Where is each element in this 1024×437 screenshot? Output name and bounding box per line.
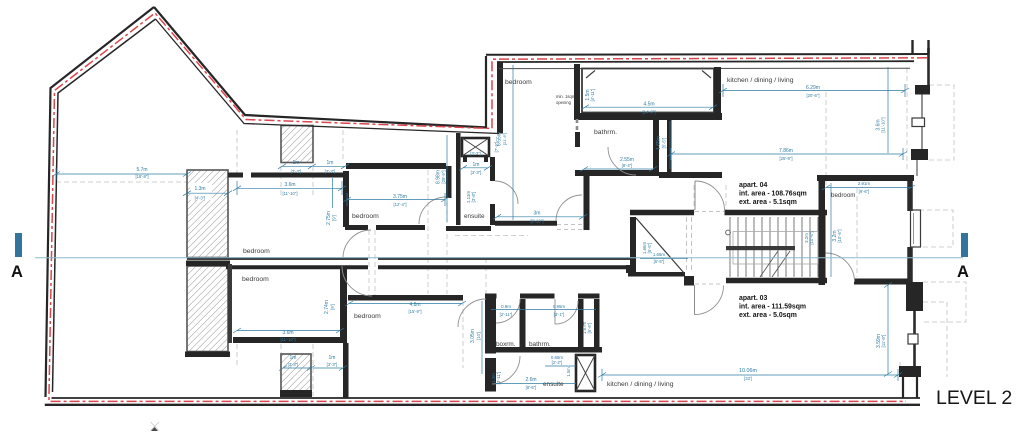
svg-text:10.06m: 10.06m (739, 368, 757, 374)
svg-text:[25'-9"]: [25'-9"] (780, 156, 793, 161)
svg-text:min. 1sqm: min. 1sqm (556, 94, 576, 99)
svg-text:[3'-11"]: [3'-11"] (496, 372, 501, 385)
svg-text:3.75m: 3.75m (393, 194, 407, 200)
svg-text:2.6m: 2.6m (525, 377, 536, 383)
svg-text:[11'-10"]: [11'-10"] (280, 337, 295, 342)
svg-text:[10']: [10'] (476, 332, 481, 340)
svg-text:apart. 03: apart. 03 (739, 295, 768, 302)
svg-text:int. area - 111.59sqm: int. area - 111.59sqm (739, 304, 806, 311)
svg-text:[15'-9"]: [15'-9"] (409, 309, 422, 314)
svg-text:kitchen / dining / living: kitchen / dining / living (607, 381, 674, 388)
svg-text:int. area - 108.76sqm: int. area - 108.76sqm (739, 191, 807, 198)
svg-text:[33']: [33'] (744, 376, 752, 381)
svg-text:[10'-6"]: [10'-6"] (809, 232, 814, 245)
svg-text:1.3m: 1.3m (194, 186, 205, 192)
svg-text:4.8m: 4.8m (409, 302, 420, 308)
svg-text:[10'-6"]: [10'-6"] (837, 230, 842, 243)
svg-text:2.91m: 2.91m (858, 181, 871, 186)
svg-text:[9'-10"]: [9'-10"] (531, 219, 544, 224)
svg-text:1m: 1m (329, 355, 336, 361)
svg-text:[11'-10"]: [11'-10"] (881, 117, 886, 132)
svg-text:[5'-6"]: [5'-6"] (587, 323, 592, 334)
svg-text:[8'-6"]: [8'-6"] (526, 385, 537, 390)
svg-text:bedroom: bedroom (354, 313, 381, 320)
svg-text:1m: 1m (290, 355, 297, 361)
svg-text:ensuite: ensuite (464, 213, 485, 220)
svg-text:[3'-3"]: [3'-3"] (291, 169, 302, 174)
svg-text:[5'-5"]: [5'-5"] (647, 243, 652, 254)
svg-text:bedroom: bedroom (831, 192, 855, 199)
svg-text:[20'-6"]: [20'-6"] (807, 93, 820, 98)
svg-text:[2'-2"]: [2'-2"] (552, 360, 563, 365)
svg-text:[3'-3"]: [3'-3"] (327, 362, 338, 367)
svg-text:3m: 3m (534, 211, 541, 217)
svg-text:apart. 04: apart. 04 (739, 182, 768, 189)
svg-text:[9'-6"]: [9'-6"] (859, 189, 870, 194)
svg-text:[3'-8"]: [3'-8"] (471, 192, 476, 203)
svg-text:[12'-4"]: [12'-4"] (394, 202, 407, 207)
svg-text:[5'-5"]: [5'-5"] (662, 138, 667, 149)
svg-text:0.95m: 0.95m (553, 304, 566, 309)
svg-text:0.9m: 0.9m (501, 304, 511, 309)
svg-text:[4'-3"]: [4'-3"] (195, 196, 206, 201)
svg-text:A: A (11, 263, 23, 281)
svg-text:[14'-9"]: [14'-9"] (643, 110, 656, 115)
svg-text:1m: 1m (327, 160, 334, 166)
svg-text:[4'-11"]: [4'-11"] (590, 89, 595, 102)
svg-text:3.6m: 3.6m (282, 330, 293, 336)
svg-text:bedroom: bedroom (242, 276, 269, 283)
svg-text:1.65m: 1.65m (653, 252, 666, 257)
svg-text:5.7m: 5.7m (136, 167, 147, 173)
svg-text:ensuite: ensuite (543, 381, 564, 388)
svg-text:1m: 1m (293, 160, 300, 166)
svg-text:[18'-8"]: [18'-8"] (136, 174, 149, 179)
svg-text:[11'-10"]: [11'-10"] (282, 191, 297, 196)
svg-text:[21'-6"]: [21'-6"] (502, 133, 507, 145)
svg-text:[9']: [9'] (330, 304, 335, 309)
svg-text:[3'-3"]: [3'-3"] (471, 170, 482, 175)
svg-text:7.86m: 7.86m (779, 148, 793, 154)
svg-text:4.5m: 4.5m (643, 102, 654, 108)
svg-text:bathrm.: bathrm. (594, 129, 617, 136)
svg-text:ext. area - 5.0sqm: ext. area - 5.0sqm (739, 312, 797, 319)
svg-text:[11'-9"]: [11'-9"] (881, 335, 886, 348)
svg-text:6.29m: 6.29m (806, 85, 820, 91)
svg-text:[2'-11"]: [2'-11"] (500, 312, 513, 317)
svg-text:[3'-1"]: [3'-1"] (554, 312, 565, 317)
svg-text:[3'-3"]: [3'-3"] (288, 362, 299, 367)
svg-text:ext. area - 5.1sqm: ext. area - 5.1sqm (739, 199, 797, 206)
svg-text:A: A (957, 263, 969, 281)
svg-text:[3'-3"]: [3'-3"] (470, 151, 481, 156)
svg-text:bathrm.: bathrm. (529, 341, 551, 348)
svg-text:1.5m: 1.5m (566, 367, 571, 377)
svg-text:[3'-3"]: [3'-3"] (325, 169, 336, 174)
svg-text:opening: opening (556, 100, 572, 105)
svg-text:1m: 1m (473, 162, 480, 168)
svg-text:boxrm.: boxrm. (496, 341, 516, 348)
svg-text:LEVEL 2: LEVEL 2 (936, 387, 1012, 409)
svg-text:[5'-5"]: [5'-5"] (654, 259, 665, 264)
svg-text:[29'-5"]: [29'-5"] (441, 171, 446, 184)
svg-text:[8'-4"]: [8'-4"] (622, 163, 633, 168)
svg-text:bedroom: bedroom (352, 213, 379, 220)
svg-text:[9']: [9'] (332, 215, 337, 220)
svg-text:3.6m: 3.6m (284, 182, 295, 188)
svg-text:bedroom: bedroom (505, 79, 532, 86)
svg-text:bedroom: bedroom (243, 248, 270, 255)
svg-text:kitchen / dining / living: kitchen / dining / living (727, 77, 794, 84)
